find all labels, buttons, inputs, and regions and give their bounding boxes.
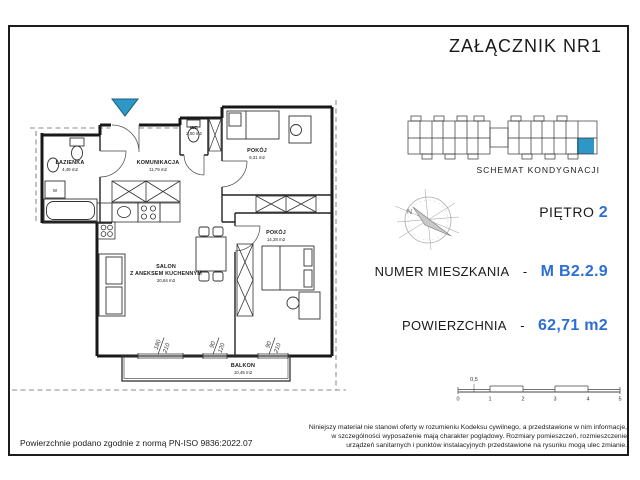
disclaimer-line-3: urządzeń sanitarnych i punktów instalacy…: [309, 441, 627, 450]
floor-row: PIĘTRO 2: [539, 204, 608, 222]
floor-value: 2: [599, 204, 608, 221]
floor-label: PIĘTRO: [539, 204, 594, 220]
separator-dash: -: [523, 264, 527, 279]
disclaimer-line-1: Niniejszy materiał nie stanowi oferty w …: [309, 423, 627, 432]
area-label: POWIERZCHNIA: [402, 318, 507, 333]
area-value: 62,71 m2: [538, 317, 608, 334]
sheet-border: [8, 25, 629, 456]
separator-dash: -: [520, 318, 524, 333]
schematic-caption: SCHEMAT KONDYGNACJI: [476, 165, 600, 175]
disclaimer-line-2: w szczególności wyposażenie mają charakt…: [309, 432, 627, 441]
sheet-title: ZAŁĄCZNIK NR1: [449, 36, 602, 57]
legal-disclaimer: Niniejszy materiał nie stanowi oferty w …: [309, 423, 627, 451]
apartment-value: M B2.2.9: [541, 263, 608, 280]
area-row: POWIERZCHNIA - 62,71 m2: [402, 317, 608, 335]
apartment-label: NUMER MIESZKANIA: [375, 264, 510, 279]
attachment-sheet: W: [0, 0, 640, 480]
apartment-number-row: NUMER MIESZKANIA - M B2.2.9: [375, 263, 608, 281]
norm-note: Powierzchnie podano zgodnie z normą PN-I…: [20, 438, 252, 448]
